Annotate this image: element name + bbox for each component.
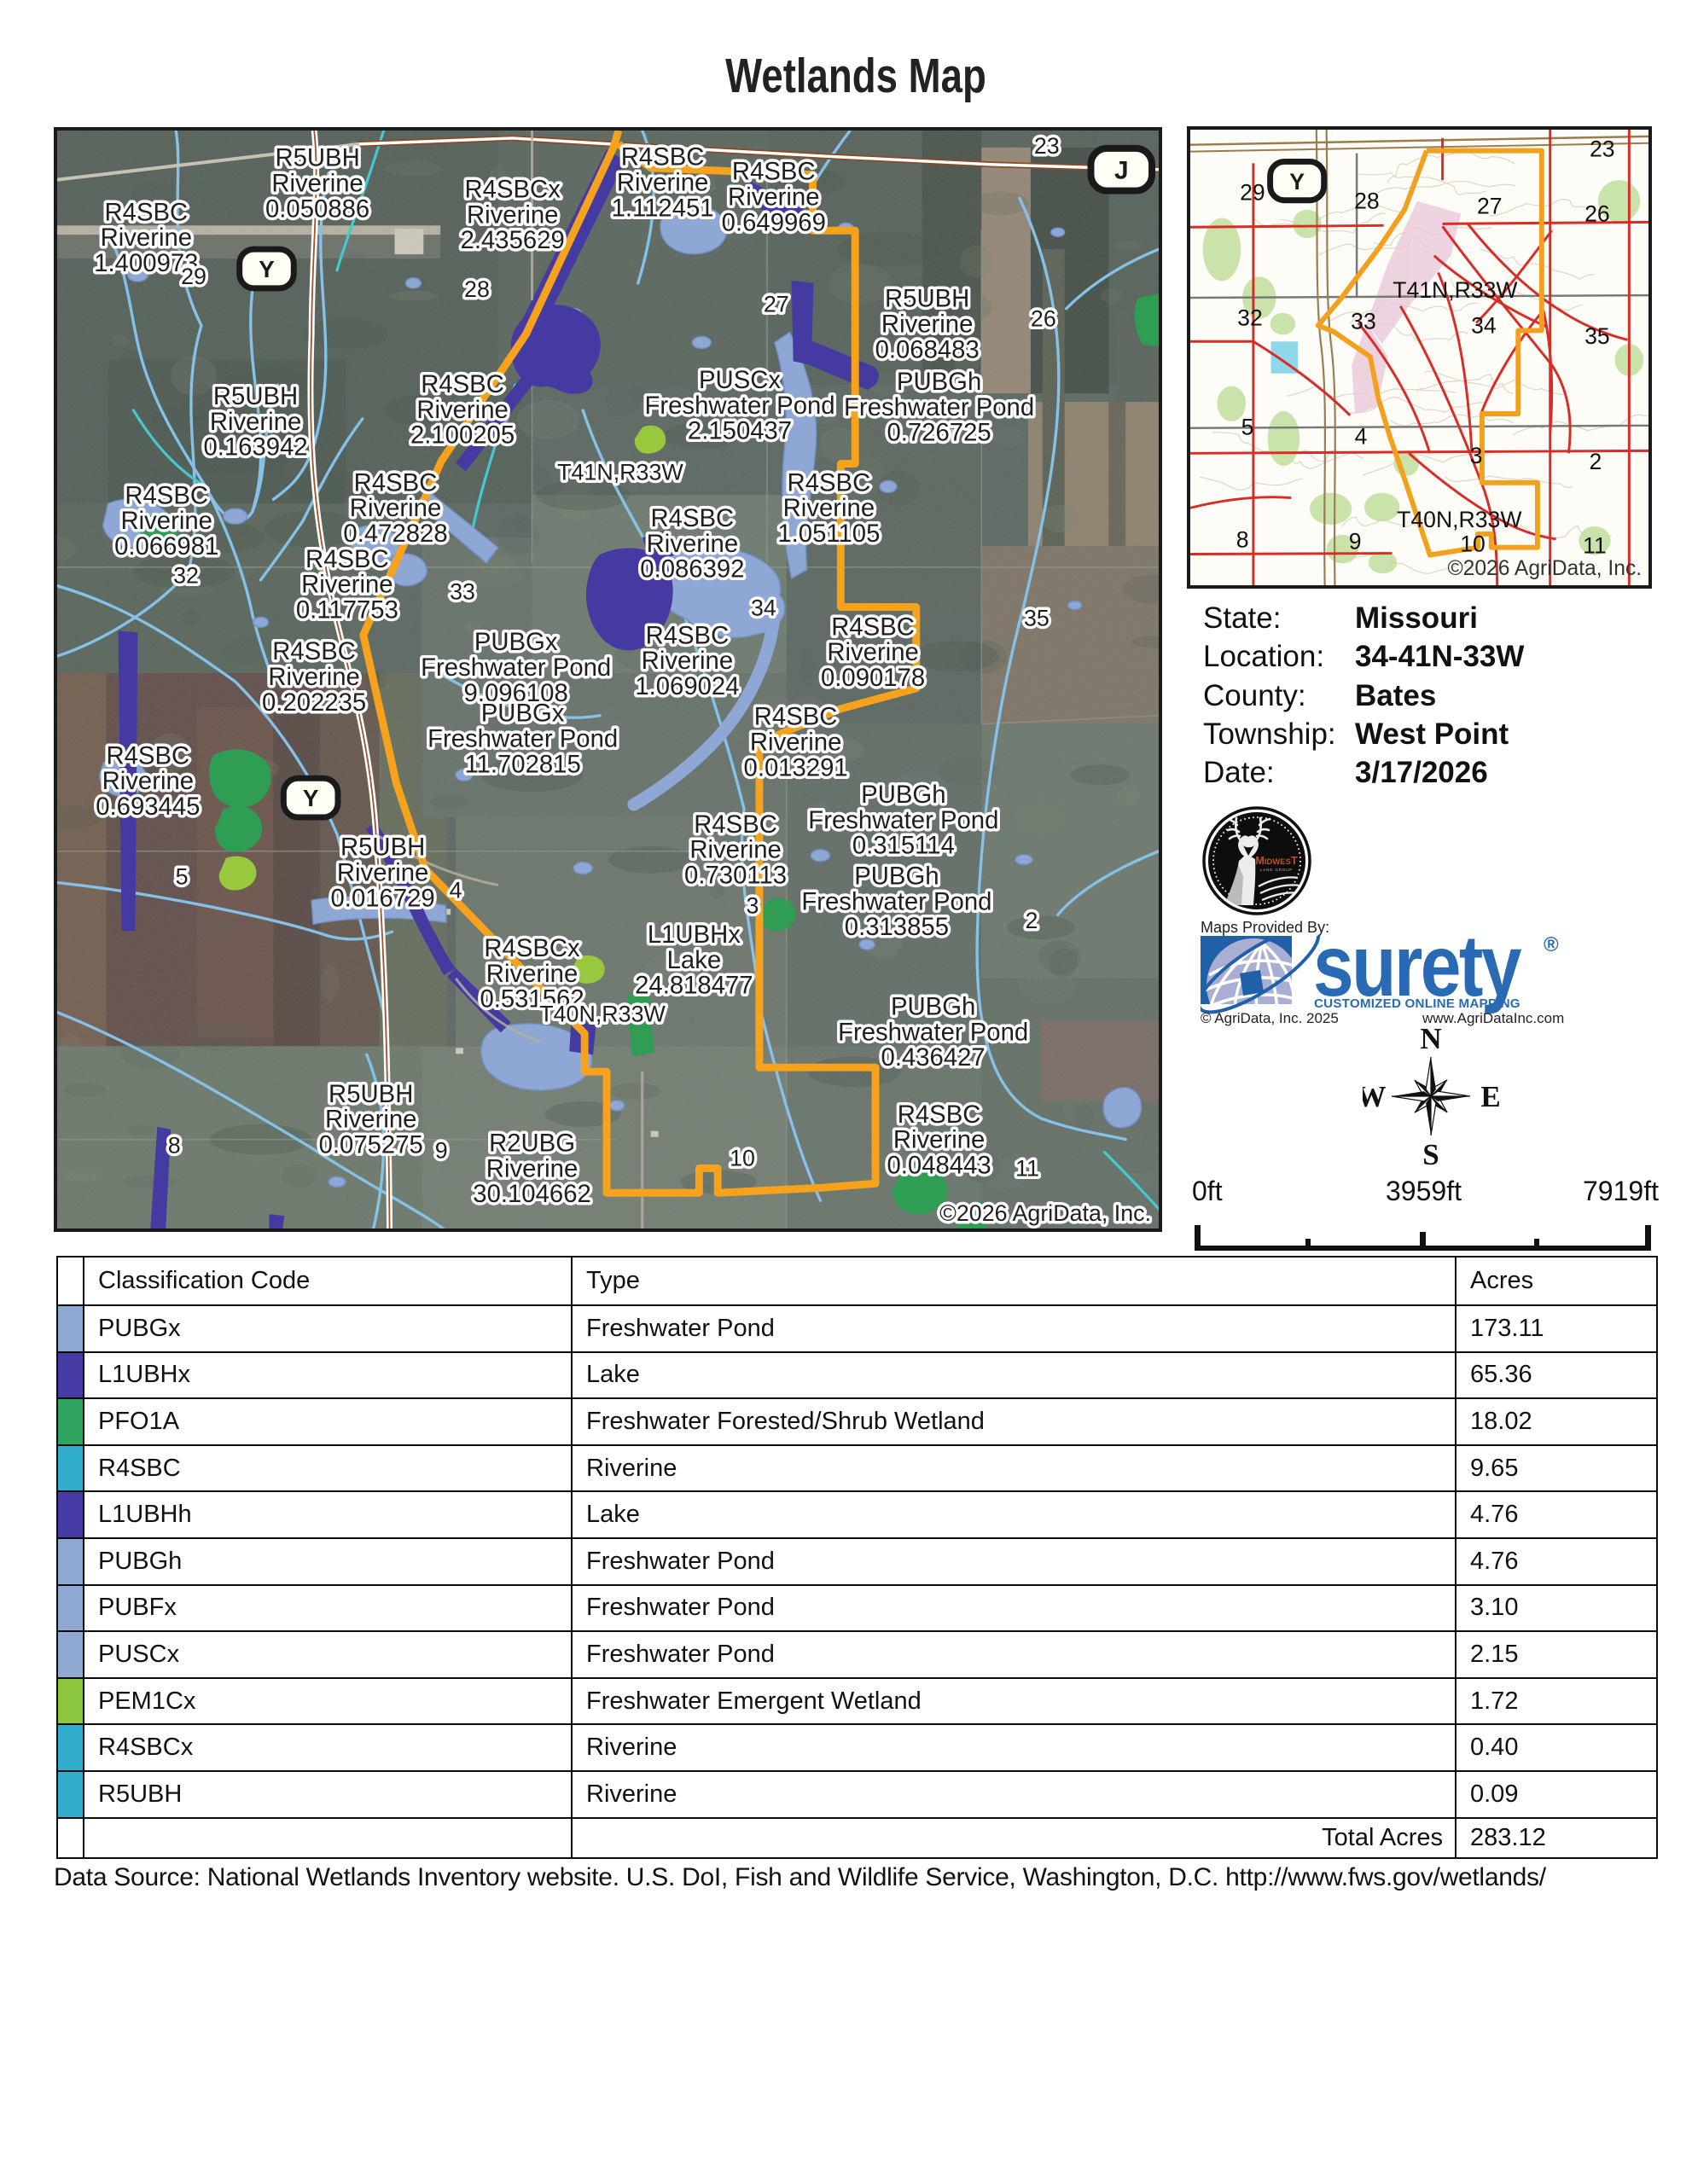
svg-text:R5UBH: R5UBH xyxy=(329,1080,413,1108)
svg-text:4: 4 xyxy=(1355,423,1368,449)
svg-text:®: ® xyxy=(1544,936,1559,956)
svg-text:R5UBH: R5UBH xyxy=(213,382,298,410)
svg-text:0.090178: 0.090178 xyxy=(821,664,925,692)
svg-text:T41N,R33W: T41N,R33W xyxy=(1393,277,1518,303)
svg-text:Freshwater Pond: Freshwater Pond xyxy=(838,1018,1028,1046)
svg-text:34: 34 xyxy=(751,595,776,620)
svg-text:S: S xyxy=(1422,1138,1439,1171)
svg-text:R4SBC: R4SBC xyxy=(354,468,438,497)
svg-text:1.069024: 1.069024 xyxy=(635,672,739,700)
svg-text:R4SBC: R4SBC xyxy=(788,468,871,497)
svg-text:Riverine: Riverine xyxy=(325,1106,416,1134)
svg-text:Riverine: Riverine xyxy=(301,571,392,599)
svg-text:Riverine: Riverine xyxy=(827,638,918,666)
svg-text:Riverine: Riverine xyxy=(647,530,738,558)
svg-text:T40N,R33W: T40N,R33W xyxy=(539,1002,666,1027)
svg-text:3: 3 xyxy=(1470,443,1483,468)
svg-text:R4SBC: R4SBC xyxy=(694,810,777,839)
svg-text:R5UBH: R5UBH xyxy=(275,144,359,172)
svg-text:28: 28 xyxy=(1354,189,1380,214)
svg-text:10: 10 xyxy=(730,1145,755,1170)
svg-text:1.051105: 1.051105 xyxy=(777,520,880,548)
svg-text:R5UBH: R5UBH xyxy=(885,285,969,313)
svg-text:27: 27 xyxy=(764,292,789,317)
svg-text:MIDWEST: MIDWEST xyxy=(1255,855,1298,867)
svg-text:Freshwater Pond: Freshwater Pond xyxy=(644,392,834,420)
svg-text:Riverine: Riverine xyxy=(337,859,428,887)
svg-text:5: 5 xyxy=(176,864,189,890)
svg-text:35: 35 xyxy=(1024,605,1050,630)
svg-text:23: 23 xyxy=(1590,136,1615,162)
svg-text:30.104662: 30.104662 xyxy=(473,1180,591,1208)
svg-text:26: 26 xyxy=(1584,200,1610,226)
svg-text:PUBGh: PUBGh xyxy=(897,368,981,396)
svg-text:Riverine: Riverine xyxy=(102,767,194,795)
svg-text:R4SBC: R4SBC xyxy=(651,504,735,532)
svg-text:35: 35 xyxy=(1584,323,1610,349)
svg-text:1.112451: 1.112451 xyxy=(612,194,714,222)
svg-text:0.086392: 0.086392 xyxy=(640,555,744,584)
svg-text:N: N xyxy=(1420,1022,1441,1055)
svg-text:2: 2 xyxy=(1025,908,1038,933)
svg-text:Riverine: Riverine xyxy=(486,960,578,988)
svg-text:Riverine: Riverine xyxy=(881,311,973,339)
svg-text:R4SBC: R4SBC xyxy=(754,703,838,731)
svg-text:2.435629: 2.435629 xyxy=(461,226,565,254)
svg-text:R4SBC: R4SBC xyxy=(272,637,356,665)
svg-text:PUBGx: PUBGx xyxy=(474,628,558,656)
svg-text:2.150437: 2.150437 xyxy=(688,417,792,445)
svg-text:3: 3 xyxy=(746,892,759,918)
svg-text:Riverine: Riverine xyxy=(893,1126,985,1154)
svg-text:11: 11 xyxy=(1583,533,1607,559)
svg-text:Riverine: Riverine xyxy=(210,408,301,436)
svg-text:PUSCx: PUSCx xyxy=(699,366,781,394)
svg-text:Riverine: Riverine xyxy=(350,494,441,522)
svg-text:11.702815: 11.702815 xyxy=(464,750,580,778)
svg-text:Freshwater Pond: Freshwater Pond xyxy=(808,806,998,834)
svg-text:Y: Y xyxy=(1289,169,1305,195)
svg-text:0.048443: 0.048443 xyxy=(887,1151,991,1179)
svg-text:Freshwater Pond: Freshwater Pond xyxy=(844,393,1034,421)
svg-text:Riverine: Riverine xyxy=(120,507,212,535)
svg-text:R5UBH: R5UBH xyxy=(340,834,425,862)
svg-text:Y: Y xyxy=(303,785,319,811)
svg-text:0.726725: 0.726725 xyxy=(887,419,991,447)
svg-text:Riverine: Riverine xyxy=(783,494,875,522)
svg-text:33: 33 xyxy=(1351,309,1376,334)
svg-text:Riverine: Riverine xyxy=(750,728,841,756)
svg-text:0.163942: 0.163942 xyxy=(203,433,307,462)
svg-text:0.016729: 0.016729 xyxy=(331,884,435,912)
svg-text:33: 33 xyxy=(450,579,475,605)
svg-text:29: 29 xyxy=(181,264,206,289)
svg-text:0.436427: 0.436427 xyxy=(881,1043,986,1072)
svg-text:R4SBC: R4SBC xyxy=(125,481,208,509)
svg-text:32: 32 xyxy=(173,563,199,589)
svg-text:J: J xyxy=(1114,157,1129,185)
svg-text:Riverine: Riverine xyxy=(689,836,781,864)
svg-text:Lake: Lake xyxy=(667,946,722,974)
svg-text:R4SBC: R4SBC xyxy=(732,158,816,186)
svg-text:8: 8 xyxy=(1236,527,1249,553)
svg-text:R4SBC: R4SBC xyxy=(105,198,189,226)
svg-text:34: 34 xyxy=(1471,312,1497,338)
svg-text:Riverine: Riverine xyxy=(642,647,733,675)
svg-text:PUBGh: PUBGh xyxy=(861,781,945,809)
svg-text:©2026 AgriData, Inc.: ©2026 AgriData, Inc. xyxy=(939,1200,1151,1226)
svg-text:0.050886: 0.050886 xyxy=(265,195,369,223)
svg-text:2.100205: 2.100205 xyxy=(410,421,515,450)
svg-text:9: 9 xyxy=(435,1138,448,1164)
svg-text:11: 11 xyxy=(1015,1155,1039,1181)
svg-text:32: 32 xyxy=(1237,305,1263,331)
svg-text:0.013291: 0.013291 xyxy=(744,753,848,781)
svg-text:R4SBC: R4SBC xyxy=(898,1101,981,1129)
svg-text:5: 5 xyxy=(1241,415,1254,440)
svg-text:0.315114: 0.315114 xyxy=(852,832,955,860)
svg-text:R4SBC: R4SBC xyxy=(646,621,730,649)
svg-text:Riverine: Riverine xyxy=(467,200,558,229)
svg-text:8: 8 xyxy=(168,1133,181,1159)
svg-text:24.818477: 24.818477 xyxy=(635,972,753,1000)
svg-text:PUBGx: PUBGx xyxy=(481,700,565,728)
svg-text:Riverine: Riverine xyxy=(416,396,508,424)
svg-text:23: 23 xyxy=(1034,133,1060,159)
svg-text:Riverine: Riverine xyxy=(271,170,363,198)
svg-text:0.075275: 0.075275 xyxy=(319,1131,423,1159)
svg-text:PUBGh: PUBGh xyxy=(854,863,939,891)
svg-text:R2UBG: R2UBG xyxy=(489,1130,575,1158)
svg-text:28: 28 xyxy=(464,276,490,302)
svg-text:LAND GROUP: LAND GROUP xyxy=(1260,868,1293,872)
svg-text:R4SBCx: R4SBCx xyxy=(465,176,561,204)
svg-text:CUSTOMIZED ONLINE MAPPING: CUSTOMIZED ONLINE MAPPING xyxy=(1314,996,1520,1011)
svg-text:Freshwater Pond: Freshwater Pond xyxy=(421,653,611,682)
svg-text:E: E xyxy=(1480,1080,1499,1113)
svg-text:4: 4 xyxy=(450,877,462,903)
svg-text:R4SBC: R4SBC xyxy=(421,370,504,398)
svg-text:R4SBC: R4SBC xyxy=(621,143,705,171)
svg-text:L1UBHx: L1UBHx xyxy=(648,921,741,949)
svg-text:Riverine: Riverine xyxy=(617,169,708,197)
svg-text:0.472828: 0.472828 xyxy=(343,520,447,548)
svg-text:W: W xyxy=(1363,1080,1387,1113)
svg-text:27: 27 xyxy=(1477,194,1503,219)
svg-text:Freshwater Pond: Freshwater Pond xyxy=(801,887,991,915)
svg-text:26: 26 xyxy=(1031,306,1056,332)
svg-text:R4SBCx: R4SBCx xyxy=(484,934,580,962)
svg-text:0.313855: 0.313855 xyxy=(845,913,949,941)
svg-text:PUBGh: PUBGh xyxy=(891,993,975,1021)
svg-text:0.649969: 0.649969 xyxy=(722,208,826,236)
svg-text:2: 2 xyxy=(1590,449,1602,474)
svg-text:0.693445: 0.693445 xyxy=(96,793,200,821)
svg-text:Riverine: Riverine xyxy=(101,224,192,252)
svg-text:29: 29 xyxy=(1240,180,1265,206)
svg-text:R4SBC: R4SBC xyxy=(305,545,389,573)
svg-text:Y: Y xyxy=(259,256,275,282)
svg-text:R4SBC: R4SBC xyxy=(831,613,915,641)
svg-text:T40N,R33W: T40N,R33W xyxy=(1397,507,1522,532)
svg-text:Freshwater Pond: Freshwater Pond xyxy=(427,725,618,753)
svg-text:0.730113: 0.730113 xyxy=(684,862,787,890)
svg-text:10: 10 xyxy=(1460,531,1486,557)
svg-text:0.202235: 0.202235 xyxy=(262,688,366,717)
svg-text:R4SBC: R4SBC xyxy=(106,741,189,770)
svg-text:0.066981: 0.066981 xyxy=(114,532,218,561)
svg-text:Riverine: Riverine xyxy=(268,663,359,691)
svg-text:9: 9 xyxy=(1349,529,1362,555)
svg-text:0.117753: 0.117753 xyxy=(296,595,398,624)
svg-text:0.068483: 0.068483 xyxy=(875,335,980,363)
svg-text:T41N,R33W: T41N,R33W xyxy=(557,459,683,485)
svg-text:©2026 AgriData, Inc.: ©2026 AgriData, Inc. xyxy=(1448,557,1643,580)
svg-text:Riverine: Riverine xyxy=(486,1154,578,1182)
svg-text:Riverine: Riverine xyxy=(728,183,819,211)
